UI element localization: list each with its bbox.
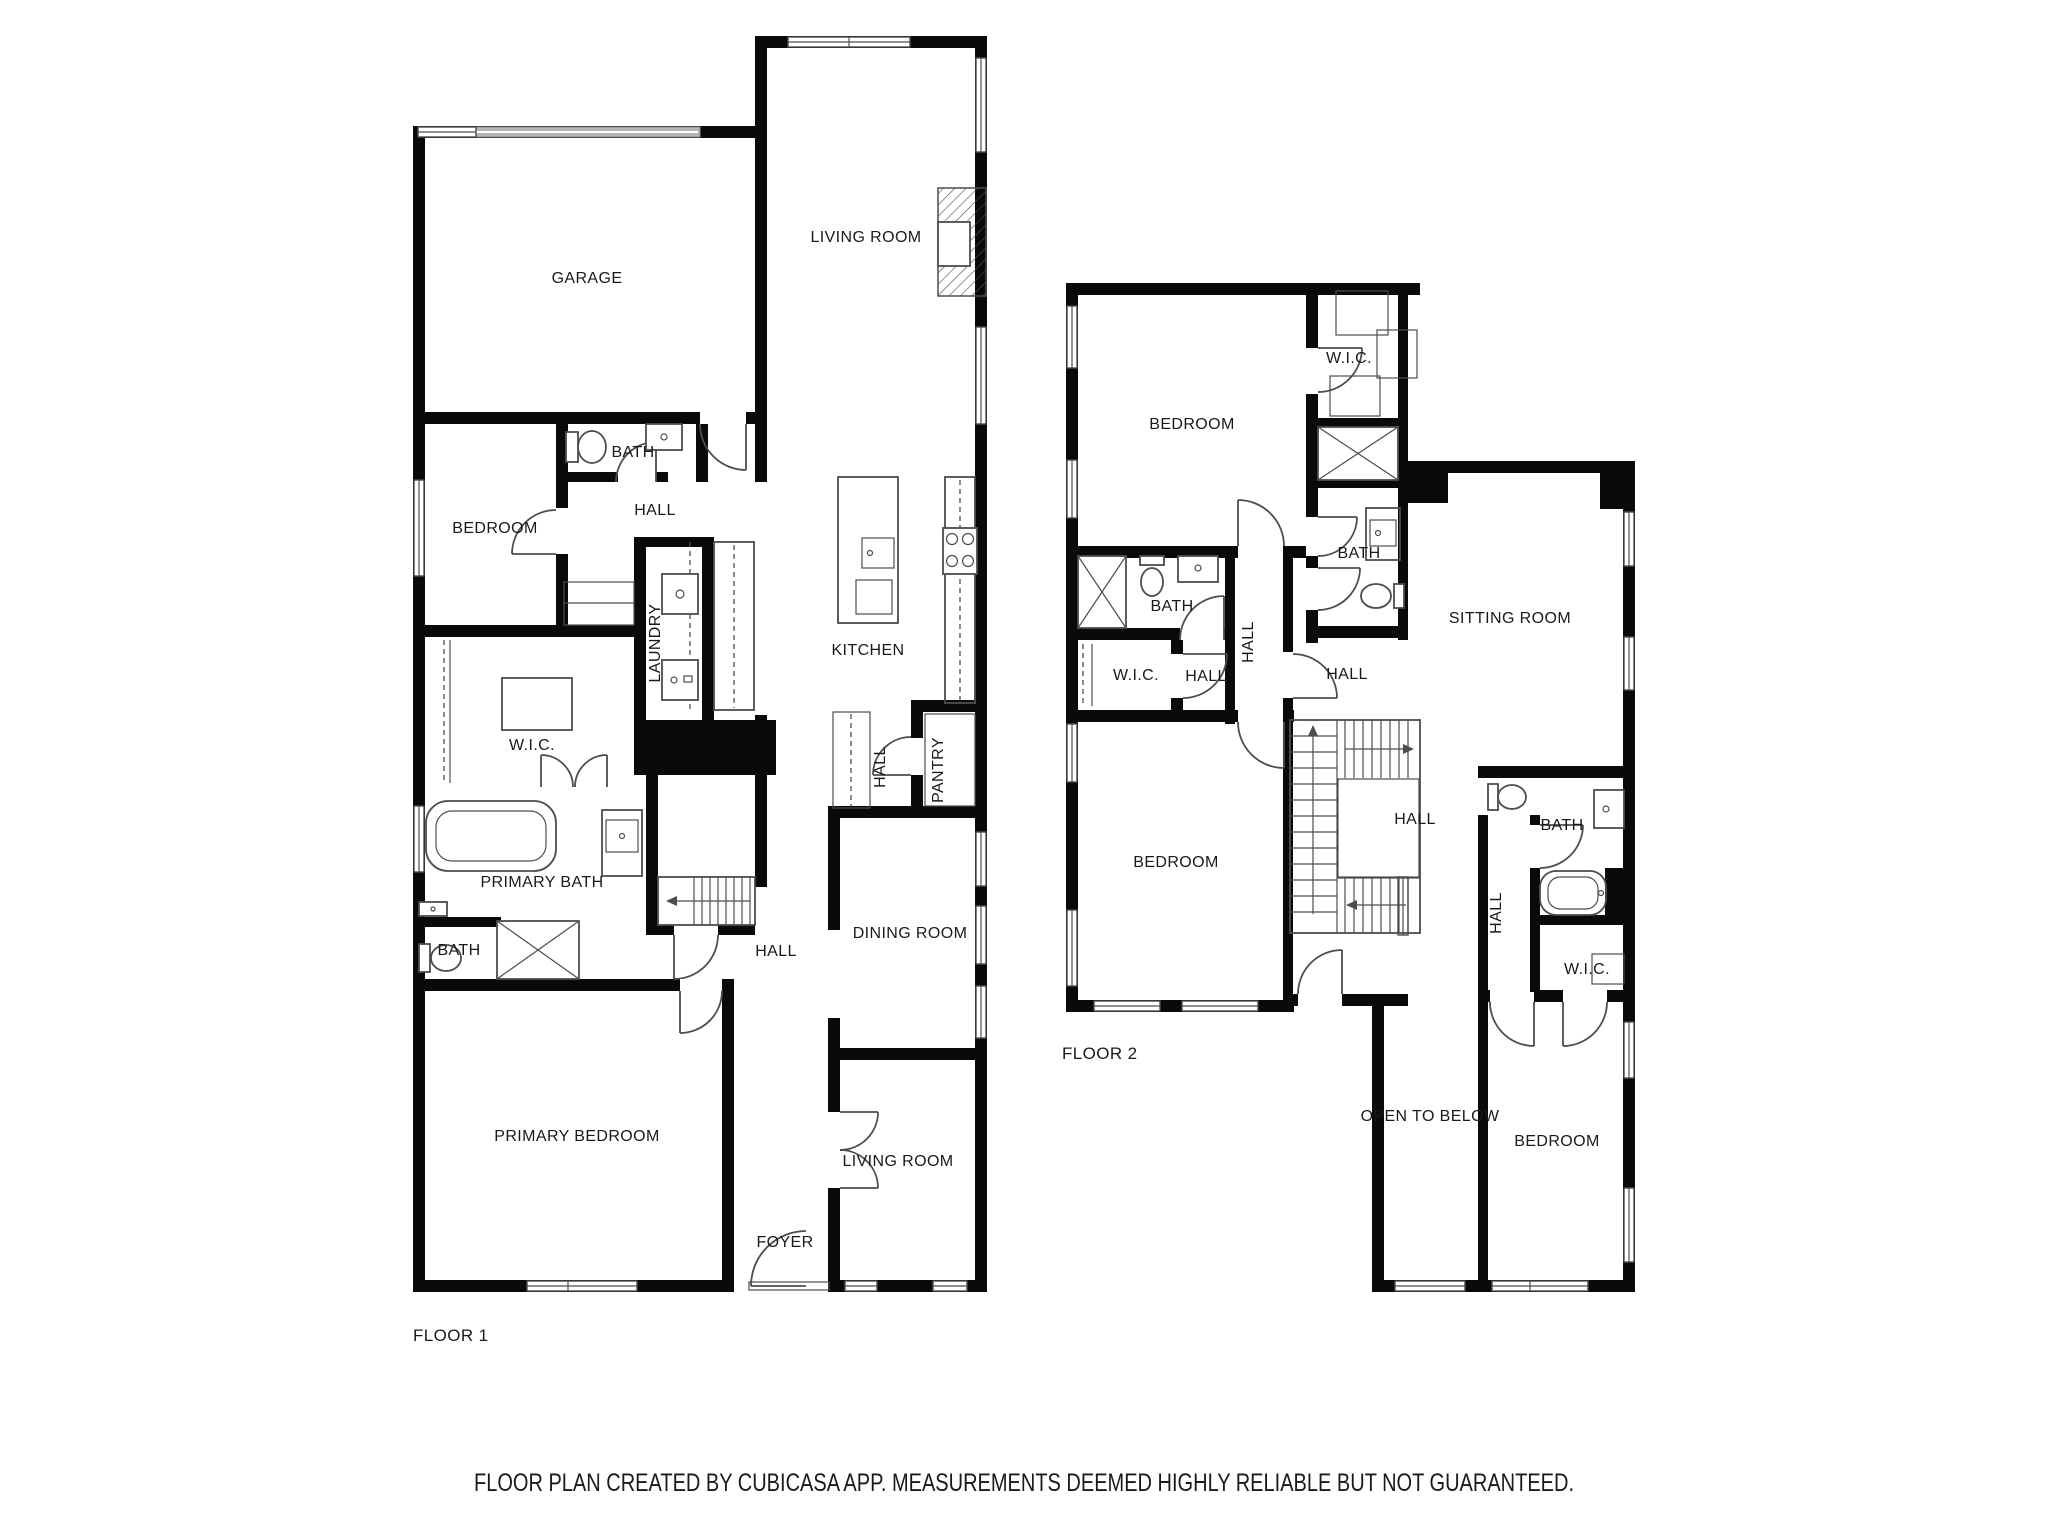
room-label-hall-lower: HALL bbox=[755, 943, 797, 960]
room-label-sitting-room: SITTING ROOM bbox=[1449, 610, 1571, 627]
room-label-wic: W.I.C. bbox=[509, 737, 555, 754]
room-label-hall-mid: HALL bbox=[872, 746, 889, 788]
room-label-bath-small: BATH bbox=[437, 942, 480, 959]
room-label-pantry: PANTRY bbox=[930, 737, 947, 803]
room-label-garage: GARAGE bbox=[552, 270, 623, 287]
room-label-foyer: FOYER bbox=[756, 1234, 813, 1251]
floor1-title: FLOOR 1 bbox=[413, 1326, 489, 1345]
room-label-living-room: LIVING ROOM bbox=[810, 229, 921, 246]
toilet bbox=[1488, 784, 1498, 810]
room-label-hall-upper: HALL bbox=[634, 502, 676, 519]
room-label-hall-vestibule: HALL bbox=[1185, 668, 1227, 685]
closet-island bbox=[502, 678, 572, 730]
laundry-sink bbox=[662, 574, 698, 614]
floor2-plan: BEDROOM W.I.C. BATH SITTING ROOM BATH W.… bbox=[1062, 283, 1635, 1292]
room-label-bath: BATH bbox=[611, 444, 654, 461]
floor1-plan: GARAGE LIVING ROOM BATH HALL BEDROOM LAU… bbox=[413, 36, 987, 1345]
floor1-garage-door bbox=[472, 127, 700, 137]
room-label-living-room-lower: LIVING ROOM bbox=[842, 1153, 953, 1170]
room-label-bath-mid: BATH bbox=[1150, 598, 1193, 615]
floor1-stairs bbox=[658, 877, 755, 925]
floor2-title: FLOOR 2 bbox=[1062, 1044, 1138, 1063]
room-label-primary-bedroom: PRIMARY BEDROOM bbox=[494, 1128, 659, 1145]
kitchen-island bbox=[838, 477, 898, 623]
room-label-primary-bath: PRIMARY BATH bbox=[480, 874, 603, 891]
toilet bbox=[566, 432, 578, 462]
room-label-bedroom-left: BEDROOM bbox=[1133, 854, 1218, 871]
room-label-bath-top: BATH bbox=[1337, 545, 1380, 562]
floor1-walls bbox=[413, 36, 987, 1292]
toilet bbox=[419, 944, 430, 972]
room-label-bedroom: BEDROOM bbox=[452, 520, 537, 537]
room-label-wic-mid: W.I.C. bbox=[1113, 667, 1159, 684]
room-label-hall-corridor: HALL bbox=[1240, 621, 1257, 663]
floorplan-page: GARAGE LIVING ROOM BATH HALL BEDROOM LAU… bbox=[0, 0, 2048, 1536]
room-label-bedroom-bottom: BEDROOM bbox=[1514, 1133, 1599, 1150]
floorplan-canvas: GARAGE LIVING ROOM BATH HALL BEDROOM LAU… bbox=[0, 0, 2048, 1536]
room-label-kitchen: KITCHEN bbox=[831, 642, 904, 659]
toilet bbox=[1361, 584, 1391, 608]
room-label-hall-south: HALL bbox=[1488, 892, 1505, 934]
toilet bbox=[1140, 556, 1164, 565]
room-label-bedroom-top: BEDROOM bbox=[1149, 416, 1234, 433]
room-label-bath-right: BATH bbox=[1540, 817, 1583, 834]
sink bbox=[419, 902, 447, 916]
sink bbox=[1178, 556, 1218, 582]
room-label-dining-room: DINING ROOM bbox=[853, 925, 968, 942]
room-label-open-to-below: OPEN TO BELOW bbox=[1361, 1108, 1500, 1125]
room-label-hall-center: HALL bbox=[1326, 666, 1368, 683]
room-label-wic-right: W.I.C. bbox=[1564, 961, 1610, 978]
room-label-hall-east: HALL bbox=[1394, 811, 1436, 828]
room-label-wic-top: W.I.C. bbox=[1326, 350, 1372, 367]
floor1-labels: GARAGE LIVING ROOM BATH HALL BEDROOM LAU… bbox=[413, 229, 967, 1345]
caption-text: FLOOR PLAN CREATED BY CUBICASA APP. MEAS… bbox=[474, 1469, 1574, 1497]
room-label-laundry: LAUNDRY bbox=[647, 604, 664, 683]
floor1-windows bbox=[414, 37, 986, 1291]
